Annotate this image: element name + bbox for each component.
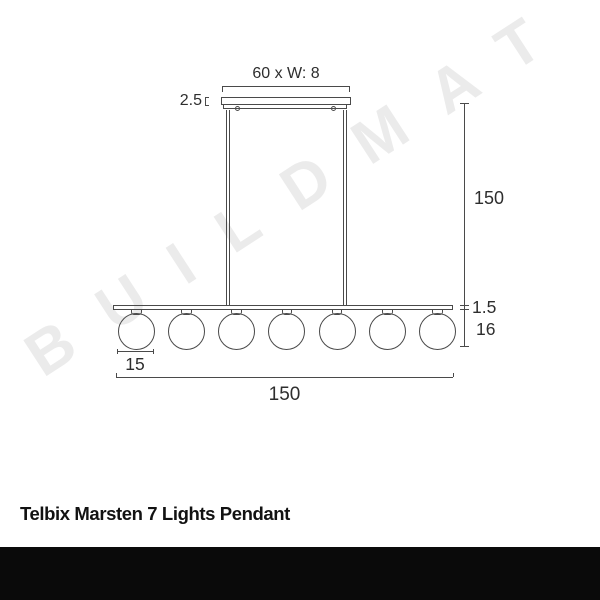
rail-thickness-label: 1.5 bbox=[472, 299, 496, 317]
ceiling-canopy-rim bbox=[223, 104, 347, 109]
dim-tick bbox=[460, 103, 469, 104]
canopy-thickness-bracket bbox=[205, 97, 209, 106]
glass-globe bbox=[218, 313, 255, 350]
dim-tick bbox=[222, 86, 223, 92]
dim-tick bbox=[349, 86, 350, 92]
canopy-screw bbox=[331, 106, 336, 111]
footer-bar: BUILDMAT telbix. bbox=[0, 547, 600, 600]
dim-tick bbox=[460, 346, 469, 347]
overall-width-dim-line bbox=[116, 377, 453, 378]
glass-globe bbox=[268, 313, 305, 350]
canopy-thickness-label: 2.5 bbox=[162, 93, 202, 109]
globe-height-label: 16 bbox=[476, 321, 495, 339]
suspension-rod-left bbox=[226, 110, 231, 306]
glass-globe bbox=[168, 313, 205, 350]
dim-tick bbox=[460, 309, 469, 310]
globe-width-label: 15 bbox=[117, 356, 153, 374]
globe-width-dim-line bbox=[117, 351, 153, 352]
page-title: Telbix Marsten 7 Lights Pendant bbox=[20, 503, 290, 525]
dim-tick bbox=[453, 373, 454, 378]
glass-globe bbox=[319, 313, 356, 350]
product-dimension-image: BUILDMAT 60 x W: 8 2.5 150 1.5 16 bbox=[0, 0, 600, 600]
canopy-width-dim-line bbox=[222, 86, 350, 87]
dim-tick bbox=[460, 305, 469, 306]
canopy-width-label: 60 x W: 8 bbox=[222, 66, 350, 82]
drop-height-label: 150 bbox=[474, 189, 504, 207]
dim-tick bbox=[116, 373, 117, 378]
glass-globe bbox=[118, 313, 155, 350]
glass-globe bbox=[419, 313, 456, 350]
canopy-screw bbox=[235, 106, 240, 111]
suspension-rod-right bbox=[343, 110, 348, 306]
glass-globe bbox=[369, 313, 406, 350]
overall-width-label: 150 bbox=[116, 385, 453, 404]
dim-tick bbox=[117, 349, 118, 354]
dim-tick bbox=[153, 349, 154, 354]
